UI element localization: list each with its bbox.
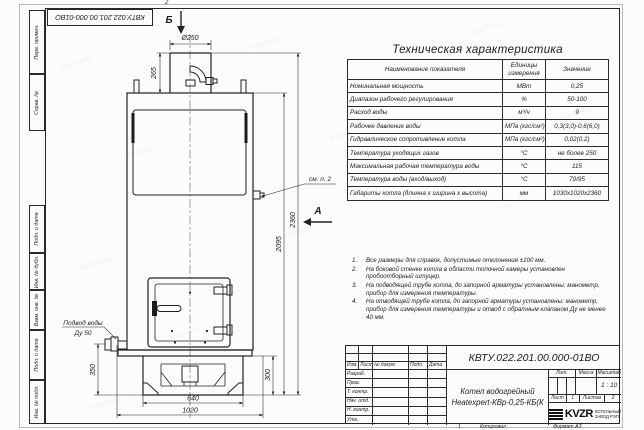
spec-unit: °С (503, 146, 546, 159)
note-item: 4.На отводящей трубе котла, до запорной … (352, 298, 612, 321)
row-nach-otd: Нач. отд. (346, 398, 373, 407)
note-text: На боковой стенке котла в области топочн… (366, 266, 612, 281)
spec-col-units: Единицы измерения (503, 60, 546, 80)
col-list: Лист (359, 362, 373, 370)
spec-row: Номинальная мощностьМВт0,25 (348, 80, 609, 93)
sheets-label: Листов (580, 395, 606, 403)
spec-name: Диапазон рабочего регулирования (348, 93, 503, 106)
spec-section: Техническая характеристика Наименование … (347, 44, 608, 201)
spec-row: Гидравлическое сопротивление котлаМПа (к… (348, 133, 609, 146)
spec-unit: МПа (кгс/см²) (503, 120, 546, 133)
leaders-and-arrows (62, 11, 336, 339)
product-name-line2: Heatexpert-КВр-0,25-КБ(К (451, 398, 543, 408)
spec-name: Температура уходящих газов (348, 146, 503, 159)
dim-base-width: 640 (187, 396, 199, 403)
boiler-details (105, 66, 264, 395)
scale-value: 1 : 10 (597, 378, 621, 395)
spec-unit: МВт (503, 80, 546, 93)
spec-row: Габариты котла (длинна х ширина х высота… (348, 187, 609, 200)
dim-body-height: 2095 (276, 236, 283, 253)
spec-value: 115 (546, 160, 609, 173)
copied-label: Копировал (480, 424, 506, 430)
spec-table: Наименование показателя Единицы измерени… (347, 59, 609, 201)
callout-see-note-2: см. п. 2 (309, 176, 332, 183)
spec-unit: мм (503, 187, 546, 200)
dim-inlet-height: 350 (90, 364, 97, 376)
dim-chimney-diameter: Ø250 (180, 35, 198, 42)
dim-total-height: 2360 (290, 212, 297, 229)
note-text: Все размеры для справок, допустимые откл… (366, 257, 612, 265)
spec-unit: °С (503, 160, 546, 173)
spec-unit: % (503, 93, 546, 106)
title-block-change-rows (346, 346, 446, 362)
view-label-b: Б (165, 15, 172, 26)
title-block-right: Лит. Масса Масштаб 1 : 10 Лист 1 Листов … (548, 370, 621, 425)
product-name-line1: Котел водогрейный (460, 387, 534, 397)
row-razrab: Разраб. (346, 370, 373, 379)
spec-unit: МПа (кгс/см²) (503, 133, 546, 146)
row-t-kontr: Т. контр. (346, 388, 373, 397)
spec-value: 50-100 (546, 93, 609, 106)
mass-label: Масса (576, 370, 598, 378)
dimension-lines (98, 44, 298, 415)
note-number: 3. (352, 282, 366, 297)
spec-row: Температура воды (вход/выход)°С70/95 (348, 173, 609, 186)
water-inlet-label-line2: Ду 50 (74, 330, 92, 337)
spec-header-row: Наименование показателя Единицы измерени… (348, 60, 609, 80)
spec-value: 0,3(3,0)-0,6(6,0) (546, 120, 609, 133)
spec-value: 1030х1020х2360 (546, 187, 609, 200)
company-logo-row: KVZR КОТЕЛЬНЫЙ ЗАВОД РЭП (549, 403, 621, 425)
kvzr-logo-icon (549, 409, 563, 420)
title-block: Изм. Лист № докум. Подп. Дата Разраб. Пр… (345, 345, 620, 424)
copy-mark: 1 (458, 424, 461, 430)
note-number: 2. (352, 266, 366, 281)
spec-value: 70/95 (546, 173, 609, 186)
scale-label: Масштаб (597, 370, 621, 378)
col-data: Дата (428, 362, 446, 370)
spec-value: не более 250 (546, 146, 609, 159)
spec-value: 9 (546, 106, 609, 119)
title-block-signature-rows: Разраб. Пров. Т. контр. Нач. отд. Н. кон… (346, 370, 446, 425)
dim-base-height: 300 (265, 369, 272, 381)
spec-name: Максимальная рабочая температура воды (348, 160, 503, 173)
spec-row: Расход водым³/ч9 (348, 106, 609, 119)
note-number: 4. (352, 298, 366, 321)
note-item: 3.На подводящей трубе котла, до запорной… (352, 282, 612, 297)
spec-name: Температура воды (вход/выход) (348, 173, 503, 186)
company-name: КОТЕЛЬНЫЙ ЗАВОД РЭП (595, 409, 621, 419)
spec-row: Температура уходящих газов°Сне более 250 (348, 146, 609, 159)
row-prov: Пров. (346, 379, 373, 388)
spec-unit: м³/ч (503, 106, 546, 119)
spec-col-name: Наименование показателя (348, 60, 503, 80)
spec-value: 0,25 (546, 80, 609, 93)
spec-unit: °С (503, 173, 546, 186)
note-number: 1. (352, 257, 366, 265)
col-dokum: № докум. (373, 362, 409, 370)
note-text: На отводящей трубе котла, до запорной ар… (366, 298, 612, 321)
kvzr-logo-text: KVZR (565, 408, 593, 420)
lit-label: Лит. (549, 370, 576, 378)
spec-name: Расход воды (348, 106, 503, 119)
spec-col-value: Значение (546, 60, 609, 80)
note-item: 1.Все размеры для справок, допустимые от… (352, 257, 612, 265)
col-izm: Изм. (346, 362, 359, 370)
dim-overall-width: 1020 (182, 408, 198, 415)
company-name-line2: ЗАВОД РЭП (595, 414, 621, 419)
water-inlet-label-line1: Подвод воды (63, 319, 103, 327)
note-text: На подводящей трубе котла, до запорной а… (366, 282, 612, 297)
row-n-kontr: Н. контр. (346, 407, 373, 416)
dim-chimney-height: 265 (151, 67, 158, 80)
sheet-label: Лист (549, 395, 567, 403)
spec-title: Техническая характеристика (347, 44, 608, 56)
spec-name: Габариты котла (длинна х ширина х высота… (348, 187, 503, 200)
spec-value: 0,02(0,2) (546, 133, 609, 146)
spec-row: Диапазон рабочего регулирования%50-100 (348, 93, 609, 106)
extension-lines (94, 40, 301, 418)
col-podp: Подп. (409, 362, 428, 370)
notes-list: 1.Все размеры для справок, допустимые от… (352, 257, 612, 323)
note-item: 2.На боковой стенке котла в области топо… (352, 266, 612, 281)
spec-name: Гидравлическое сопротивление котла (348, 133, 503, 146)
format-label: Формат А3 (553, 424, 581, 430)
drawing-sheet: kotel-kv.kz kotel-kv.kz kotel-kv.kz kote… (0, 0, 644, 430)
title-block-header-row: Изм. Лист № докум. Подп. Дата (346, 362, 446, 370)
spec-row: Максимальная рабочая температура воды°С1… (348, 160, 609, 173)
sheet-value: 1 (567, 395, 580, 403)
title-block-product-name: Котел водогрейный Heatexpert-КВр-0,25-КБ… (446, 370, 548, 425)
spec-name: Рабочее давление воды (348, 120, 503, 133)
title-block-doc-number: КВТУ.022.201.00.000-01ВО (446, 346, 621, 370)
row-utv: Утв. (346, 416, 373, 425)
view-label-a: А (313, 206, 321, 217)
spec-row: Рабочее давление водыМПа (кгс/см²)0,3(3,… (348, 120, 609, 133)
boiler-outline (118, 53, 253, 395)
spec-name: Номинальная мощность (348, 80, 503, 93)
sheets-value: 2 (605, 395, 621, 403)
